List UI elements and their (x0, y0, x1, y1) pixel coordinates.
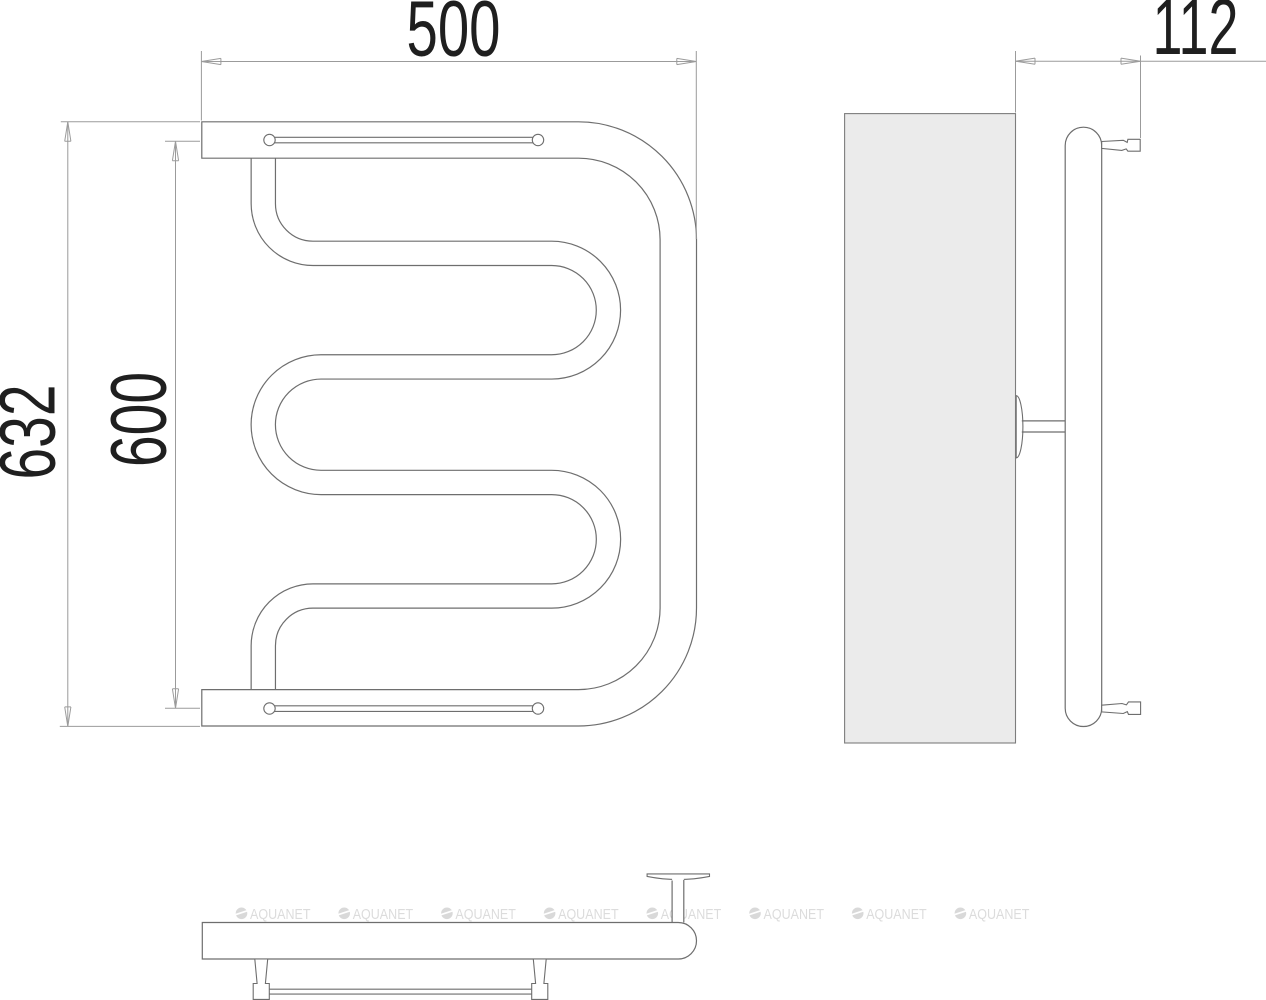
svg-text:AQUANET: AQUANET (558, 907, 619, 923)
svg-text:600: 600 (94, 372, 183, 467)
svg-text:AQUANET: AQUANET (764, 907, 825, 923)
svg-text:AQUANET: AQUANET (250, 907, 311, 923)
svg-text:632: 632 (0, 385, 71, 480)
svg-text:AQUANET: AQUANET (353, 907, 414, 923)
svg-text:112: 112 (1153, 0, 1239, 71)
svg-text:AQUANET: AQUANET (455, 907, 516, 923)
svg-text:AQUANET: AQUANET (969, 907, 1030, 923)
svg-text:AQUANET: AQUANET (661, 907, 722, 923)
svg-text:AQUANET: AQUANET (866, 907, 927, 923)
svg-text:500: 500 (407, 0, 501, 72)
